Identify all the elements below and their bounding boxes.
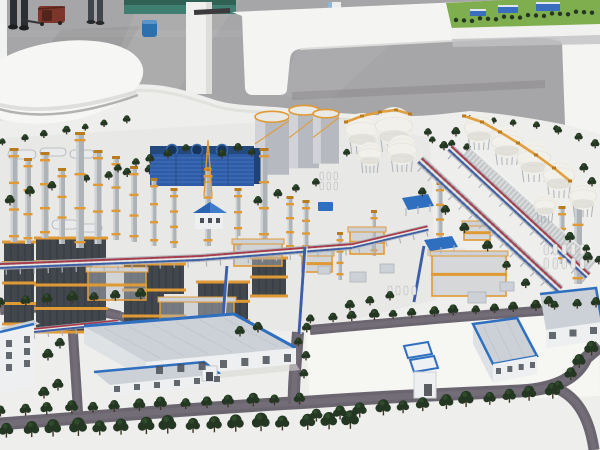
blue-shed [318,202,333,211]
teal-wall-top [124,0,236,5]
display-pillar [186,2,212,94]
blue-trash-bin [142,20,157,37]
mini-site-model-on-bench [446,0,600,47]
photo-of-plant-scale-model: Photograph of a large physical scale mod… [0,0,600,450]
